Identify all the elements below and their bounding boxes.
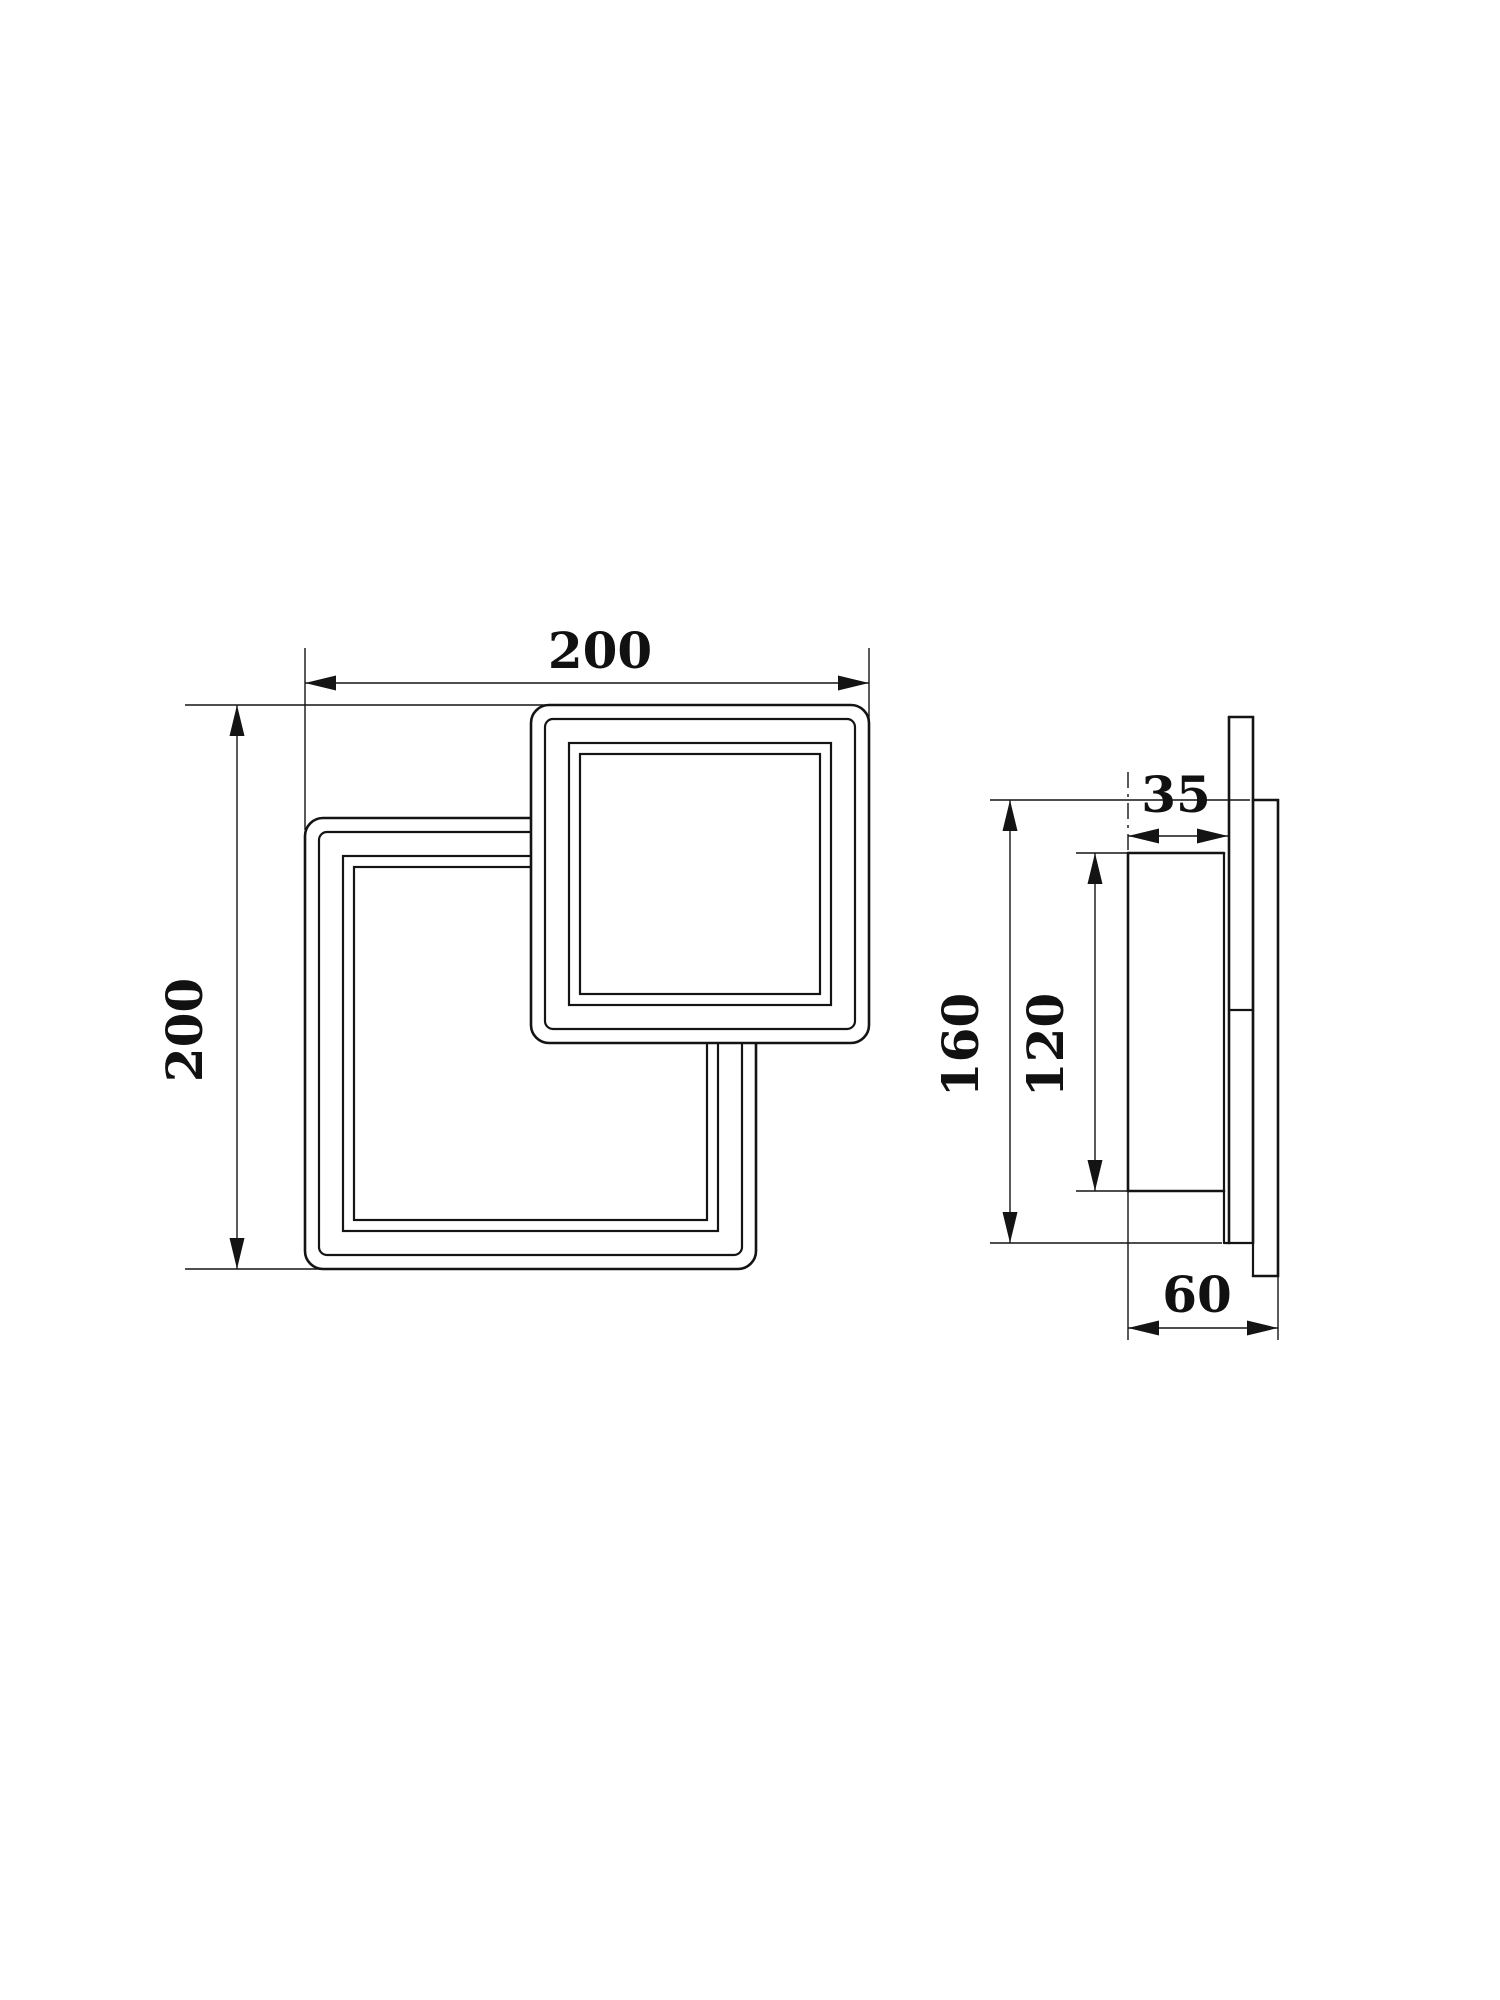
dim-label-front-width: 200 [548, 621, 652, 680]
dim-label-panel-height: 120 [1016, 993, 1075, 1097]
paper-background [0, 0, 1500, 2000]
technical-drawing-canvas: 200 200 [0, 0, 1500, 2000]
drawing-page: 200 200 [0, 0, 1500, 2000]
dim-label-overall-depth: 60 [1162, 1265, 1232, 1324]
dim-label-overall-height: 160 [931, 993, 990, 1097]
dim-label-body-depth: 35 [1141, 765, 1211, 824]
dim-label-front-height: 200 [155, 978, 214, 1082]
